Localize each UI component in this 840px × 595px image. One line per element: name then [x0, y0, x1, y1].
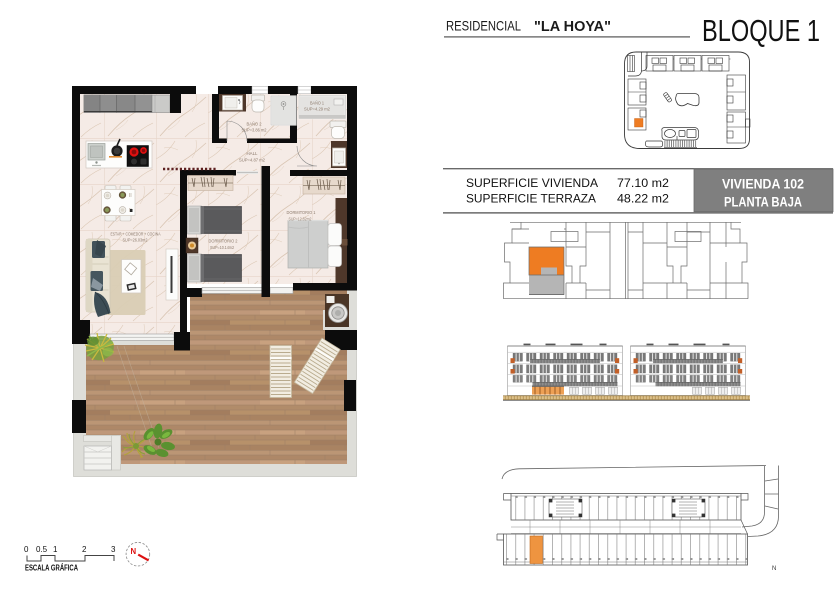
svg-text:N: N — [131, 547, 137, 556]
svg-text:SUP=10.14m2: SUP=10.14m2 — [210, 245, 234, 250]
svg-text:DORMITORIO 1: DORMITORIO 1 — [287, 210, 316, 215]
svg-text:BAÑO 1: BAÑO 1 — [310, 101, 324, 106]
svg-text:0.5: 0.5 — [36, 545, 48, 554]
svg-text:3: 3 — [111, 545, 116, 554]
svg-text:RESIDENCIAL: RESIDENCIAL — [446, 19, 521, 34]
svg-text:ESTAR + COMEDOR + COCINA: ESTAR + COMEDOR + COCINA — [111, 232, 161, 237]
svg-text:2: 2 — [82, 545, 87, 554]
svg-text:SUPERFICIE TERRAZA: SUPERFICIE TERRAZA — [466, 192, 596, 206]
svg-text:77.10 m2: 77.10 m2 — [617, 176, 669, 190]
svg-text:SUP=26.03m2: SUP=26.03m2 — [123, 238, 148, 243]
svg-text:SUP=3.86 m2: SUP=3.86 m2 — [242, 128, 267, 133]
svg-text:PLANTA BAJA: PLANTA BAJA — [724, 195, 802, 210]
svg-text:VIVIENDA 102: VIVIENDA 102 — [722, 177, 804, 192]
svg-text:SUP=12.82m2: SUP=12.82m2 — [289, 217, 312, 222]
svg-text:"LA HOYA": "LA HOYA" — [534, 19, 611, 35]
svg-text:1: 1 — [53, 545, 58, 554]
svg-text:BAÑO 2: BAÑO 2 — [247, 122, 263, 127]
svg-text:SUPERFICIE VIVIENDA: SUPERFICIE VIVIENDA — [466, 176, 598, 190]
svg-text:BLOQUE 1: BLOQUE 1 — [702, 14, 820, 48]
svg-text:N: N — [772, 566, 776, 572]
svg-text:ESCALA GRÁFICA: ESCALA GRÁFICA — [25, 563, 78, 573]
svg-text:SUP=4.87 m2: SUP=4.87 m2 — [239, 158, 266, 163]
svg-text:48.22 m2: 48.22 m2 — [617, 192, 669, 206]
svg-text:SUP=4.29 m2: SUP=4.29 m2 — [304, 107, 331, 112]
svg-text:0: 0 — [24, 545, 29, 554]
svg-text:DORMITORIO 2: DORMITORIO 2 — [209, 239, 238, 244]
svg-text:HALL: HALL — [247, 151, 259, 156]
